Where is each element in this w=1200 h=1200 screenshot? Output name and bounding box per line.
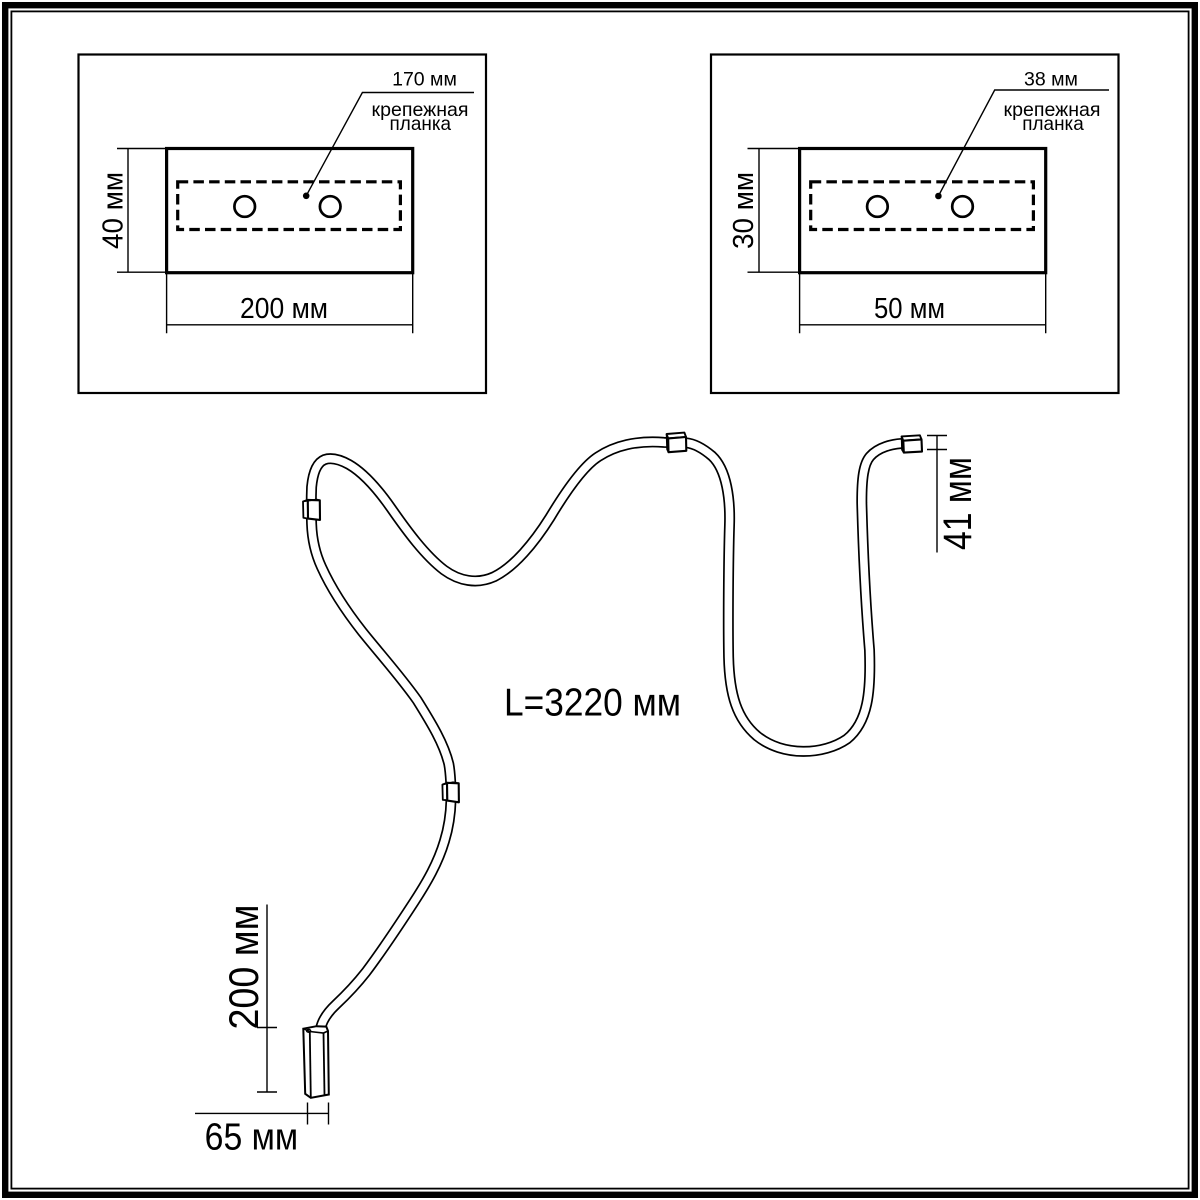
svg-text:200 мм: 200 мм bbox=[240, 293, 328, 325]
svg-text:планка: планка bbox=[1022, 113, 1084, 135]
svg-text:планка: планка bbox=[390, 113, 452, 135]
svg-text:41 мм: 41 мм bbox=[936, 457, 980, 550]
svg-text:L=3220 мм: L=3220 мм bbox=[504, 682, 681, 725]
svg-text:50 мм: 50 мм bbox=[874, 293, 945, 325]
svg-text:65 мм: 65 мм bbox=[205, 1117, 299, 1159]
svg-text:30 мм: 30 мм bbox=[728, 172, 760, 249]
svg-text:40 мм: 40 мм bbox=[98, 172, 130, 249]
svg-text:200 мм: 200 мм bbox=[220, 905, 267, 1030]
svg-text:170 мм: 170 мм bbox=[392, 69, 457, 91]
svg-text:38 мм: 38 мм bbox=[1024, 69, 1078, 91]
